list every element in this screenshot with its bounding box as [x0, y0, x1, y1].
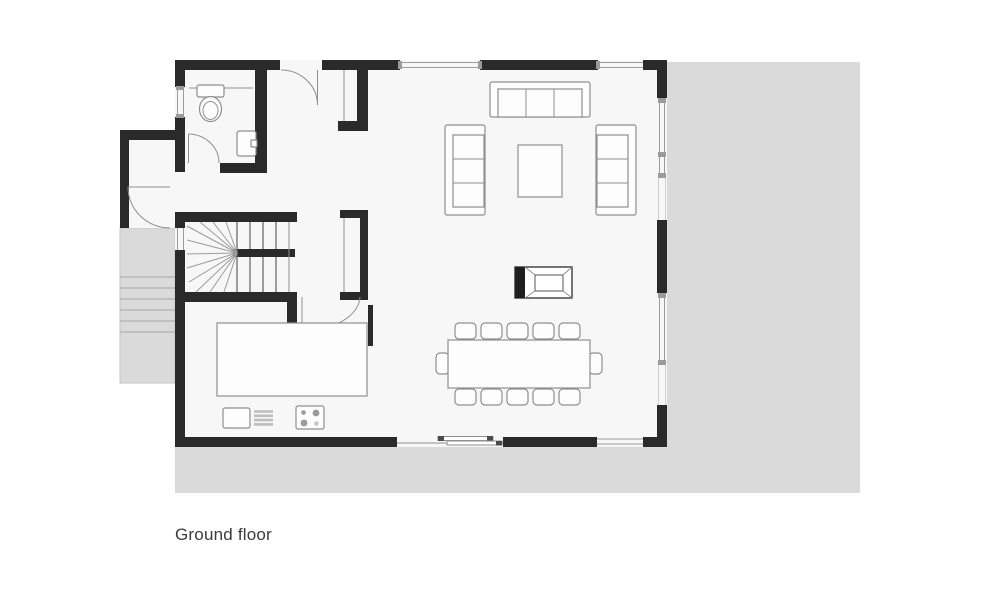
toilet: [197, 85, 224, 122]
fireplace: [515, 267, 572, 298]
sofa-right: [596, 125, 636, 215]
sofa-left: [445, 125, 485, 215]
kitchen-counter: [217, 323, 367, 396]
exterior-stairs: [120, 228, 175, 383]
sofa-top: [490, 82, 590, 117]
floor-plan-drawing: [0, 0, 992, 591]
stove: [296, 406, 324, 429]
dining-set: [436, 323, 602, 405]
bathroom-sink: [237, 131, 257, 156]
dining-table: [448, 340, 590, 388]
floor-label: Ground floor: [175, 525, 272, 545]
coffee-table: [518, 145, 562, 197]
floor-plan-page: Ground floor: [0, 0, 992, 591]
